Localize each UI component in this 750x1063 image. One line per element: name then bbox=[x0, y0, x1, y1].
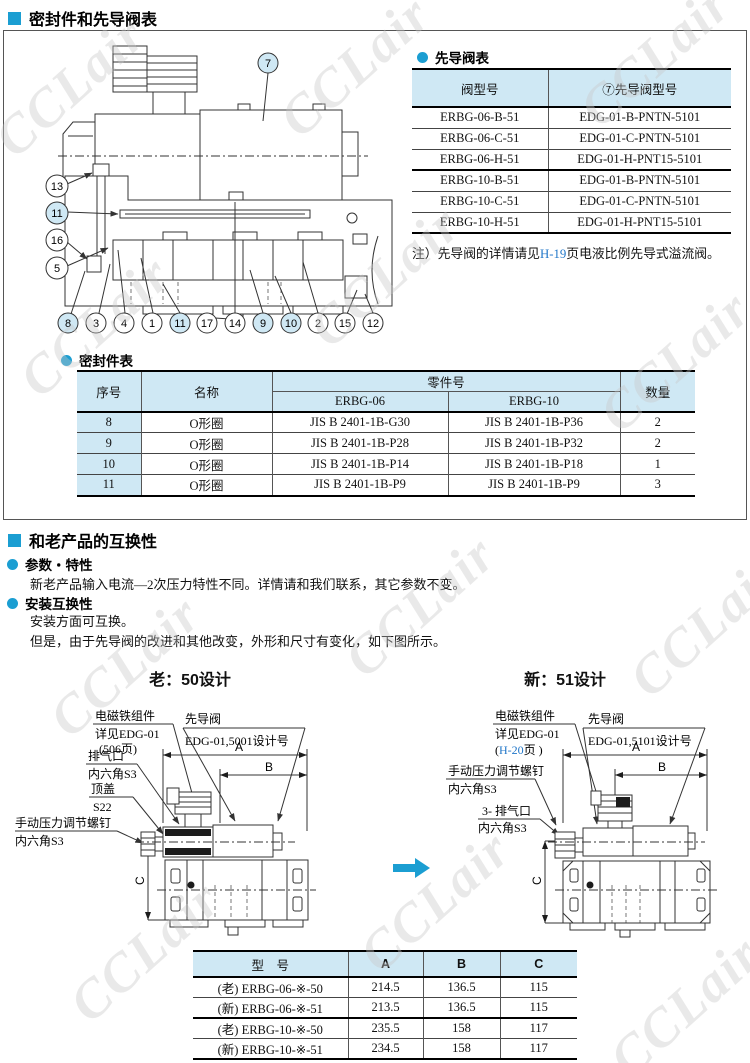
cell: JIS B 2401-1B-P9 bbox=[448, 475, 620, 496]
column-header: 阀型号 bbox=[412, 69, 548, 107]
table-row: ERBG-10-B-51 EDG-01-B-PNTN-5101 bbox=[412, 170, 731, 191]
svg-text:C: C bbox=[133, 876, 147, 885]
svg-text:3- 排气口: 3- 排气口 bbox=[482, 803, 531, 818]
svg-text:先导阀: 先导阀 bbox=[185, 712, 221, 726]
svg-text:8: 8 bbox=[65, 318, 71, 330]
cell: (新) ERBG-10-※-51 bbox=[193, 1039, 348, 1060]
cell: (老) ERBG-10-※-50 bbox=[193, 1018, 348, 1039]
cell: 213.5 bbox=[348, 998, 423, 1019]
pilot-table-note: 注）先导阀的详情请见H-19页电液比例先导式溢流阀。 bbox=[412, 243, 747, 262]
cell: EDG-01-C-PNTN-5101 bbox=[548, 191, 731, 212]
column-header: ERBG-06 bbox=[272, 392, 448, 412]
cell: JIS B 2401-1B-P36 bbox=[448, 412, 620, 433]
cell: 9 bbox=[77, 433, 141, 454]
new-design-labels: 电磁铁组件 详见EDG-01 (H-20页 ) 先导阀 EDG-01,5101设… bbox=[446, 708, 705, 835]
cell: 117 bbox=[500, 1018, 577, 1039]
callout-17: 17 bbox=[197, 313, 217, 333]
callout-7: 7 bbox=[258, 53, 278, 73]
svg-text:7: 7 bbox=[265, 58, 271, 70]
old-valve-drawing bbox=[135, 788, 316, 935]
column-header: 零件号 bbox=[272, 371, 620, 392]
column-header: B bbox=[423, 951, 500, 977]
cell: 158 bbox=[423, 1018, 500, 1039]
svg-text:电磁铁组件: 电磁铁组件 bbox=[95, 708, 155, 723]
svg-text:10: 10 bbox=[285, 318, 297, 330]
cell: 3 bbox=[620, 475, 695, 496]
cell: 1 bbox=[620, 454, 695, 475]
column-header: A bbox=[348, 951, 423, 977]
svg-text:B: B bbox=[265, 760, 273, 774]
cell: 11 bbox=[77, 475, 141, 496]
seal-table-title: 密封件表 bbox=[79, 350, 133, 370]
svg-text:A: A bbox=[632, 740, 640, 754]
callout-10: 10 bbox=[281, 313, 301, 333]
cell: (新) ERBG-06-※-51 bbox=[193, 998, 348, 1019]
cell: 10 bbox=[77, 454, 141, 475]
svg-text:手动压力调节螺钉: 手动压力调节螺钉 bbox=[15, 816, 111, 830]
svg-text:5: 5 bbox=[54, 263, 60, 275]
callout-16: 16 bbox=[46, 229, 68, 251]
callout-8: 8 bbox=[58, 313, 78, 333]
svg-text:3: 3 bbox=[93, 318, 99, 330]
svg-text:14: 14 bbox=[229, 318, 241, 330]
cell: 117 bbox=[500, 1039, 577, 1060]
table-row: ERBG-06-B-51 EDG-01-B-PNTN-5101 bbox=[412, 107, 731, 128]
cell: EDG-01-B-PNTN-5101 bbox=[548, 107, 731, 128]
callout-13: 13 bbox=[46, 175, 68, 197]
svg-text:2: 2 bbox=[315, 318, 321, 330]
cell: O形圈 bbox=[141, 433, 272, 454]
callout-12: 12 bbox=[363, 313, 383, 333]
svg-text:S22: S22 bbox=[93, 800, 112, 814]
seal-table-heading: 密封件表 bbox=[61, 350, 133, 370]
cell: 115 bbox=[500, 998, 577, 1019]
cell: O形圈 bbox=[141, 475, 272, 496]
callout-5: 5 bbox=[46, 257, 68, 279]
svg-text:4: 4 bbox=[121, 318, 127, 330]
cell: 214.5 bbox=[348, 977, 423, 998]
svg-text:9: 9 bbox=[260, 318, 266, 330]
svg-text:手动压力调节螺钉: 手动压力调节螺钉 bbox=[448, 764, 544, 778]
svg-text:17: 17 bbox=[201, 318, 213, 330]
table-row: (老) ERBG-10-※-50 235.5 158 117 bbox=[193, 1018, 577, 1039]
old-design-title: 老：50设计 bbox=[100, 666, 280, 690]
cell: 136.5 bbox=[423, 977, 500, 998]
cell: (老) ERBG-06-※-50 bbox=[193, 977, 348, 998]
cell: 115 bbox=[500, 977, 577, 998]
table-row: 11 O形圈 JIS B 2401-1B-P9 JIS B 2401-1B-P9… bbox=[77, 475, 695, 496]
mount-heading: 安装互换性 bbox=[7, 593, 93, 613]
heading-square-icon bbox=[8, 534, 21, 547]
table-row: (新) ERBG-06-※-51 213.5 136.5 115 bbox=[193, 998, 577, 1019]
paragraph: 但是，由于先导阀的改进和其他改变，外形和尺寸有变化，如下图所示。 bbox=[30, 631, 446, 650]
old-design-diagram: 电磁铁组件 详见EDG-01 (506页) 先导阀 EDG-01,5001设计号… bbox=[15, 693, 390, 953]
table-row: ERBG-10-H-51 EDG-01-H-PNT15-5101 bbox=[412, 212, 731, 233]
cell: JIS B 2401-1B-P14 bbox=[272, 454, 448, 475]
cell: JIS B 2401-1B-G30 bbox=[272, 412, 448, 433]
pilot-table-heading: 先导阀表 bbox=[417, 47, 489, 67]
solenoid-page-ref: (H-20页 ) bbox=[495, 743, 543, 757]
heading-square-icon bbox=[8, 12, 21, 25]
section1-title: 密封件和先导阀表 bbox=[29, 6, 157, 30]
cell: ERBG-06-C-51 bbox=[412, 128, 548, 149]
note-text: 注）先导阀的详情请见 bbox=[412, 247, 540, 261]
table-row: ERBG-06-H-51 EDG-01-H-PNT15-5101 bbox=[412, 149, 731, 170]
cell: EDG-01-H-PNT15-5101 bbox=[548, 149, 731, 170]
pilot-table-title: 先导阀表 bbox=[435, 47, 489, 67]
cell: 235.5 bbox=[348, 1018, 423, 1039]
mount-heading-label: 安装互换性 bbox=[25, 593, 93, 613]
table-row: (老) ERBG-06-※-50 214.5 136.5 115 bbox=[193, 977, 577, 998]
svg-text:11: 11 bbox=[51, 208, 62, 220]
cell: ERBG-06-B-51 bbox=[412, 107, 548, 128]
svg-text:先导阀: 先导阀 bbox=[588, 712, 624, 726]
seal-table: 序号 名称 零件号 数量 ERBG-06 ERBG-10 8 O形圈 JIS B… bbox=[77, 370, 695, 497]
cell: EDG-01-C-PNTN-5101 bbox=[548, 128, 731, 149]
cell: 158 bbox=[423, 1039, 500, 1060]
cell: EDG-01-B-PNTN-5101 bbox=[548, 170, 731, 191]
new-design-diagram: 电磁铁组件 详见EDG-01 (H-20页 ) 先导阀 EDG-01,5101设… bbox=[420, 693, 750, 953]
pilot-valve-table: 阀型号 ⑦先导阀型号 ERBG-06-B-51 EDG-01-B-PNTN-51… bbox=[412, 68, 731, 234]
dimension-table: 型 号 A B C (老) ERBG-06-※-50 214.5 136.5 1… bbox=[193, 950, 577, 1060]
svg-text:12: 12 bbox=[367, 318, 379, 330]
svg-text:电磁铁组件: 电磁铁组件 bbox=[495, 708, 555, 723]
svg-text:A: A bbox=[235, 740, 243, 754]
svg-text:1: 1 bbox=[149, 318, 155, 330]
svg-text:11: 11 bbox=[174, 318, 185, 330]
column-header: ERBG-10 bbox=[448, 392, 620, 412]
table-row: ERBG-10-C-51 EDG-01-C-PNTN-5101 bbox=[412, 191, 731, 212]
bullet-dot-icon bbox=[7, 598, 18, 609]
cell: 136.5 bbox=[423, 998, 500, 1019]
table-row: 9 O形圈 JIS B 2401-1B-P28 JIS B 2401-1B-P3… bbox=[77, 433, 695, 454]
svg-text:顶盖: 顶盖 bbox=[91, 782, 115, 796]
valve-body-drawing bbox=[58, 46, 392, 322]
callout-11-bottom: 11 bbox=[170, 313, 190, 333]
svg-text:排气口: 排气口 bbox=[88, 748, 124, 763]
callout-2: 2 bbox=[308, 313, 328, 333]
bullet-dot-icon bbox=[7, 559, 18, 570]
cell: 2 bbox=[620, 433, 695, 454]
svg-text:内六角S3: 内六角S3 bbox=[88, 767, 137, 781]
column-header: 数量 bbox=[620, 371, 695, 412]
cell: EDG-01-H-PNT15-5101 bbox=[548, 212, 731, 233]
cell: JIS B 2401-1B-P18 bbox=[448, 454, 620, 475]
svg-text:内六角S3: 内六角S3 bbox=[478, 821, 527, 835]
section2-heading: 和老产品的互换性 bbox=[8, 528, 157, 552]
svg-text:内六角S3: 内六角S3 bbox=[448, 782, 497, 796]
cell: JIS B 2401-1B-P28 bbox=[272, 433, 448, 454]
table-row: ERBG-06-C-51 EDG-01-C-PNTN-5101 bbox=[412, 128, 731, 149]
section1-heading: 密封件和先导阀表 bbox=[8, 6, 157, 30]
param-heading-label: 参数・特性 bbox=[25, 554, 93, 574]
catalog-page: CCLair CCLair CCLair CCLair CCLair CCLai… bbox=[0, 0, 750, 1063]
new-design-title: 新：51设计 bbox=[475, 666, 655, 690]
callout-3: 3 bbox=[86, 313, 106, 333]
cell: 234.5 bbox=[348, 1039, 423, 1060]
table-row: (新) ERBG-10-※-51 234.5 158 117 bbox=[193, 1039, 577, 1060]
column-header: 序号 bbox=[77, 371, 141, 412]
callout-9: 9 bbox=[253, 313, 273, 333]
cell: JIS B 2401-1B-P9 bbox=[272, 475, 448, 496]
page-ref-link[interactable]: H-19 bbox=[540, 247, 566, 261]
table-row: 10 O形圈 JIS B 2401-1B-P14 JIS B 2401-1B-P… bbox=[77, 454, 695, 475]
svg-text:16: 16 bbox=[51, 235, 63, 247]
cell: ERBG-10-H-51 bbox=[412, 212, 548, 233]
column-header: C bbox=[500, 951, 577, 977]
svg-text:B: B bbox=[658, 760, 666, 774]
table-row: 8 O形圈 JIS B 2401-1B-G30 JIS B 2401-1B-P3… bbox=[77, 412, 695, 433]
column-header: 型 号 bbox=[193, 951, 348, 977]
watermark: CCLair bbox=[332, 523, 507, 690]
paragraph: 安装方面可互换。 bbox=[30, 611, 134, 630]
cell: O形圈 bbox=[141, 454, 272, 475]
callout-14: 14 bbox=[225, 313, 245, 333]
callout-4: 4 bbox=[114, 313, 134, 333]
cell: JIS B 2401-1B-P32 bbox=[448, 433, 620, 454]
column-header: 名称 bbox=[141, 371, 272, 412]
cell: 8 bbox=[77, 412, 141, 433]
cell: ERBG-10-B-51 bbox=[412, 170, 548, 191]
svg-text:15: 15 bbox=[339, 318, 351, 330]
svg-text:内六角S3: 内六角S3 bbox=[15, 834, 64, 848]
note-text: 页电液比例先导式溢流阀。 bbox=[566, 247, 720, 261]
callout-1: 1 bbox=[142, 313, 162, 333]
callout-15: 15 bbox=[335, 313, 355, 333]
svg-text:13: 13 bbox=[51, 181, 63, 193]
cell: 2 bbox=[620, 412, 695, 433]
section2-title: 和老产品的互换性 bbox=[29, 528, 157, 552]
svg-text:详见EDG-01: 详见EDG-01 bbox=[495, 726, 560, 741]
bullet-dot-icon bbox=[417, 52, 428, 63]
bullet-dot-icon bbox=[61, 355, 72, 366]
svg-text:详见EDG-01: 详见EDG-01 bbox=[95, 726, 160, 741]
column-header: ⑦先导阀型号 bbox=[548, 69, 731, 107]
new-valve-drawing bbox=[548, 791, 718, 937]
svg-text:C: C bbox=[530, 876, 544, 885]
valve-cross-section-diagram: 7 13 11 16 5 8 3 4 1 11 17 14 9 10 2 15 … bbox=[13, 36, 413, 351]
paragraph: 新老产品输入电流—2次压力特性不同。详情请和我们联系，其它参数不变。 bbox=[30, 574, 466, 593]
cell: O形圈 bbox=[141, 412, 272, 433]
param-heading: 参数・特性 bbox=[7, 554, 93, 574]
cell: ERBG-06-H-51 bbox=[412, 149, 548, 170]
cell: ERBG-10-C-51 bbox=[412, 191, 548, 212]
callout-11-left: 11 bbox=[46, 202, 68, 224]
